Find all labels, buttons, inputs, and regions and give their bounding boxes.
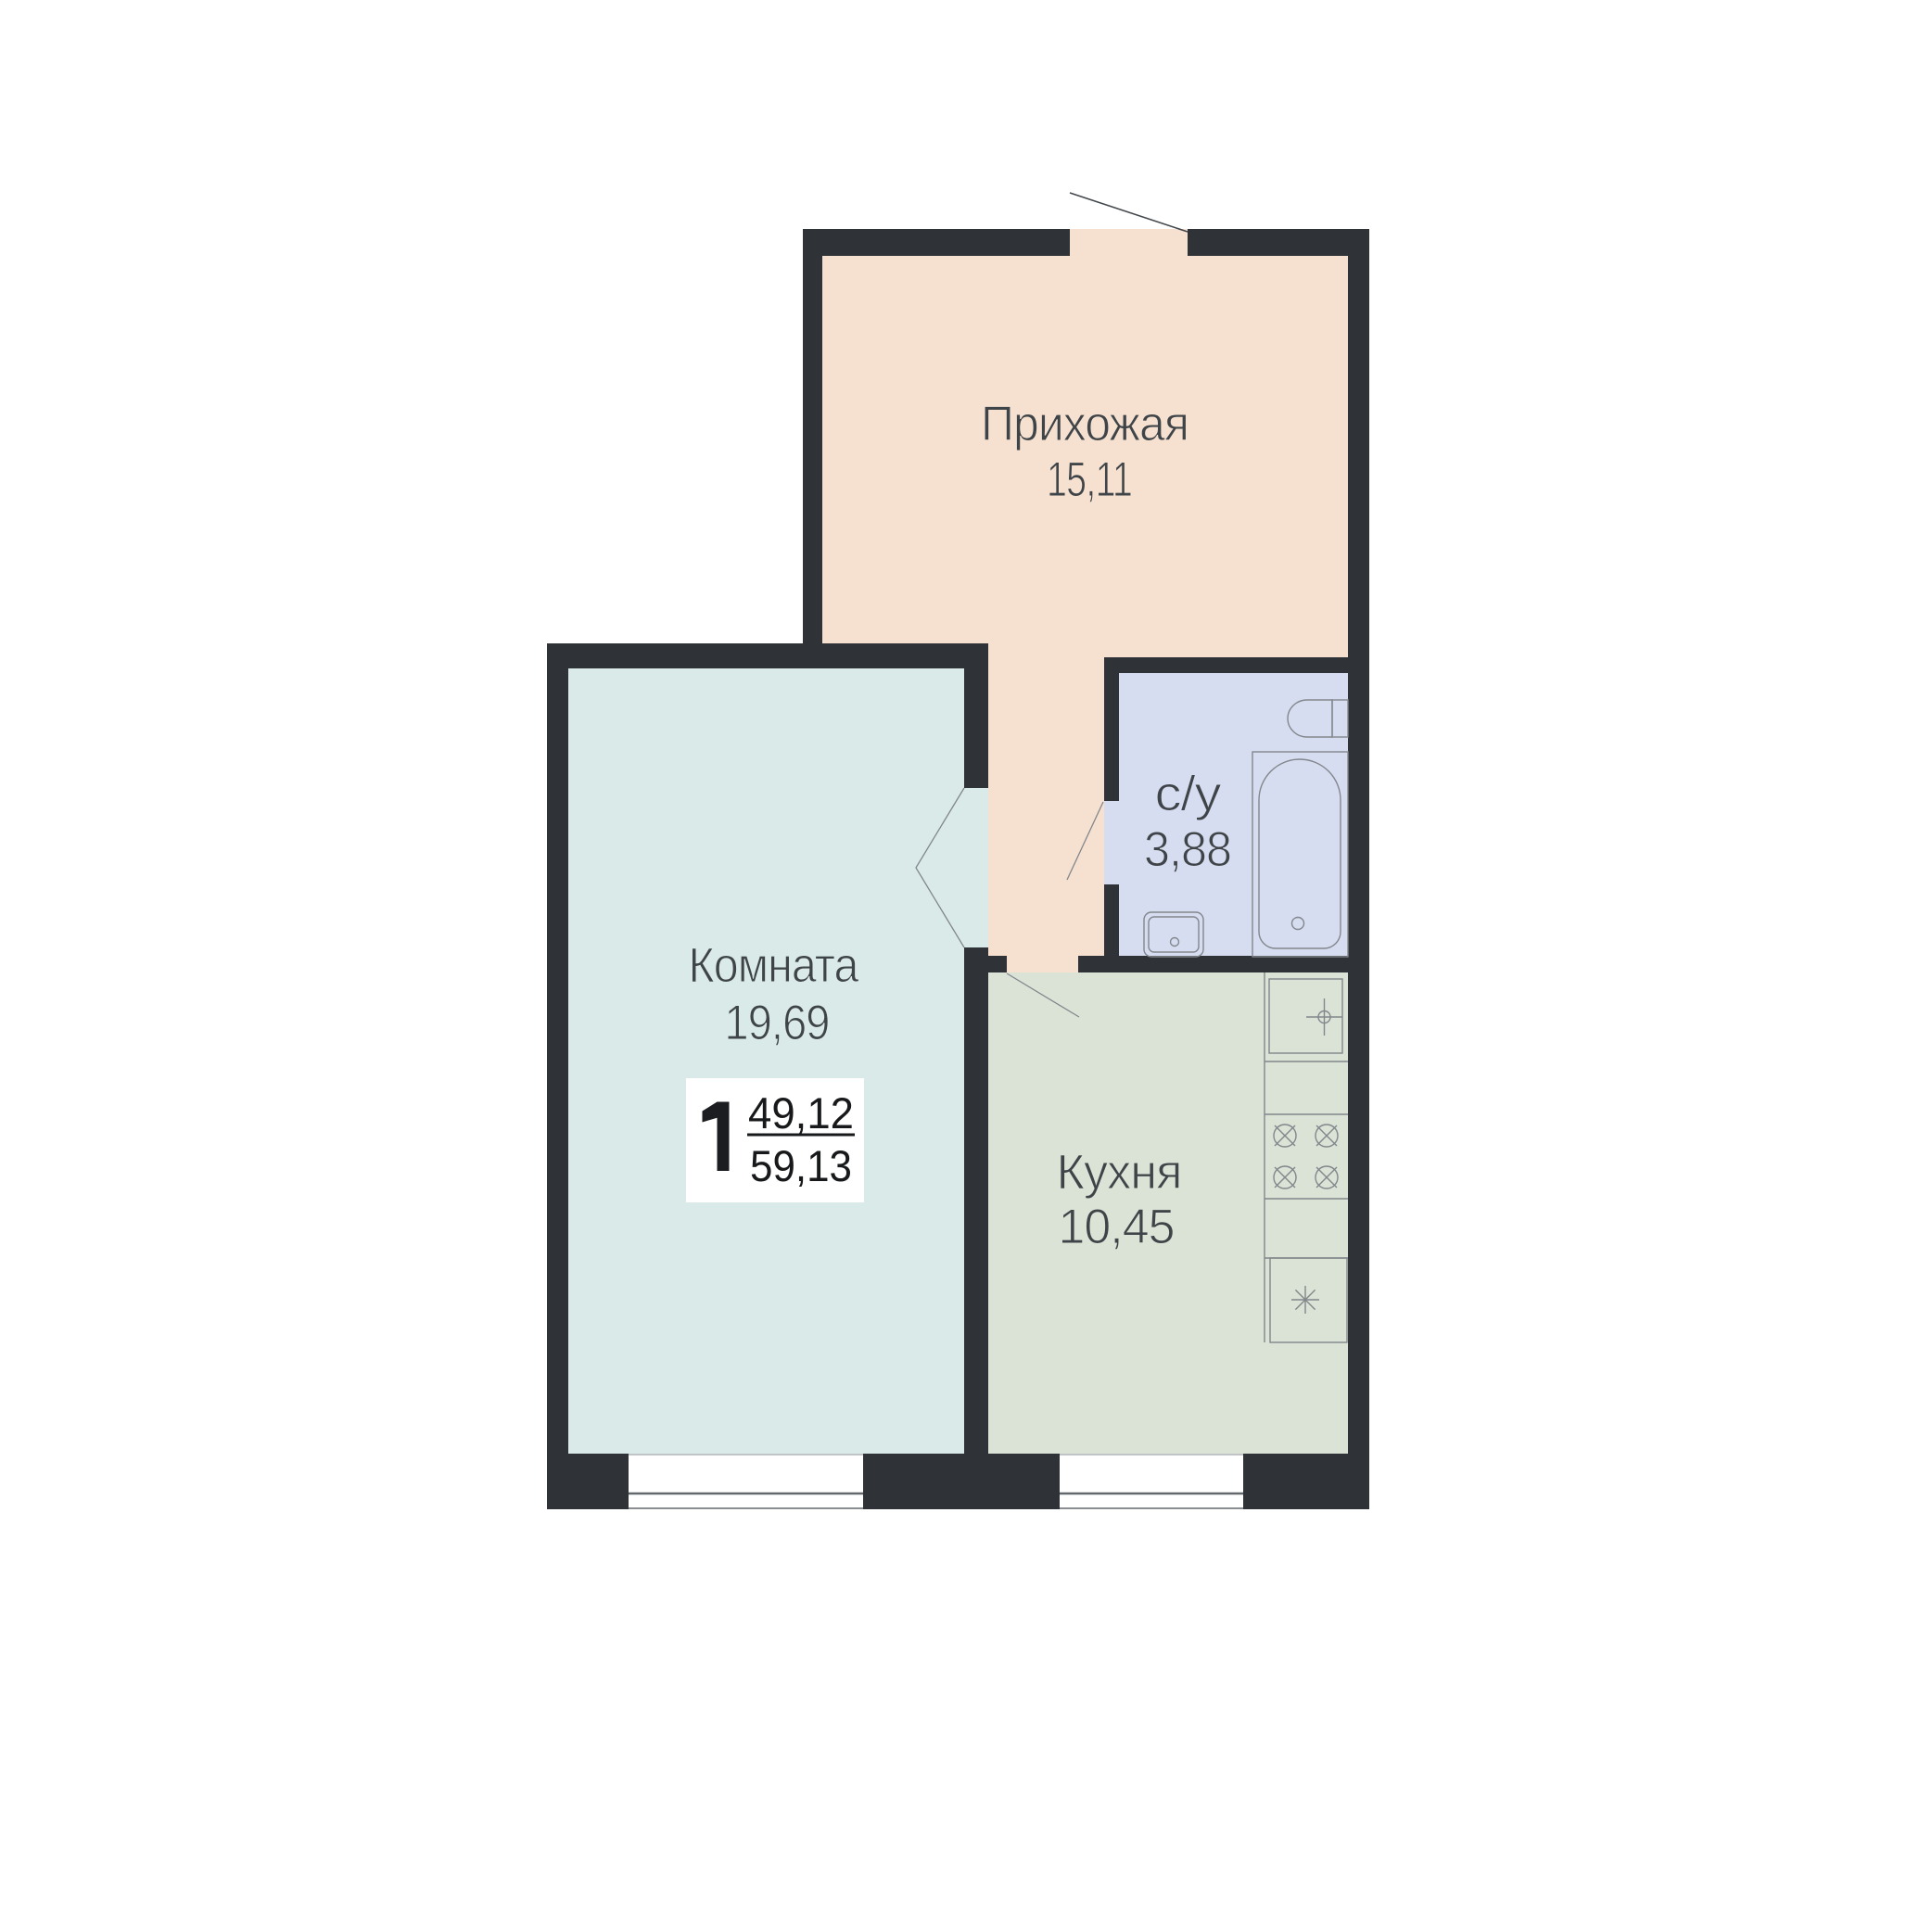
svg-text:15,11: 15,11 <box>1047 452 1132 507</box>
svg-text:Прихожая: Прихожая <box>981 397 1188 451</box>
svg-text:10,45: 10,45 <box>1059 1200 1175 1254</box>
svg-text:3,88: 3,88 <box>1144 822 1231 877</box>
svg-text:Комната: Комната <box>689 938 859 993</box>
svg-text:19,69: 19,69 <box>725 996 830 1050</box>
svg-text:Кухня: Кухня <box>1057 1145 1182 1200</box>
svg-text:59,13: 59,13 <box>750 1141 852 1190</box>
svg-text:49,12: 49,12 <box>748 1088 854 1138</box>
svg-text:с/у: с/у <box>1155 767 1223 821</box>
